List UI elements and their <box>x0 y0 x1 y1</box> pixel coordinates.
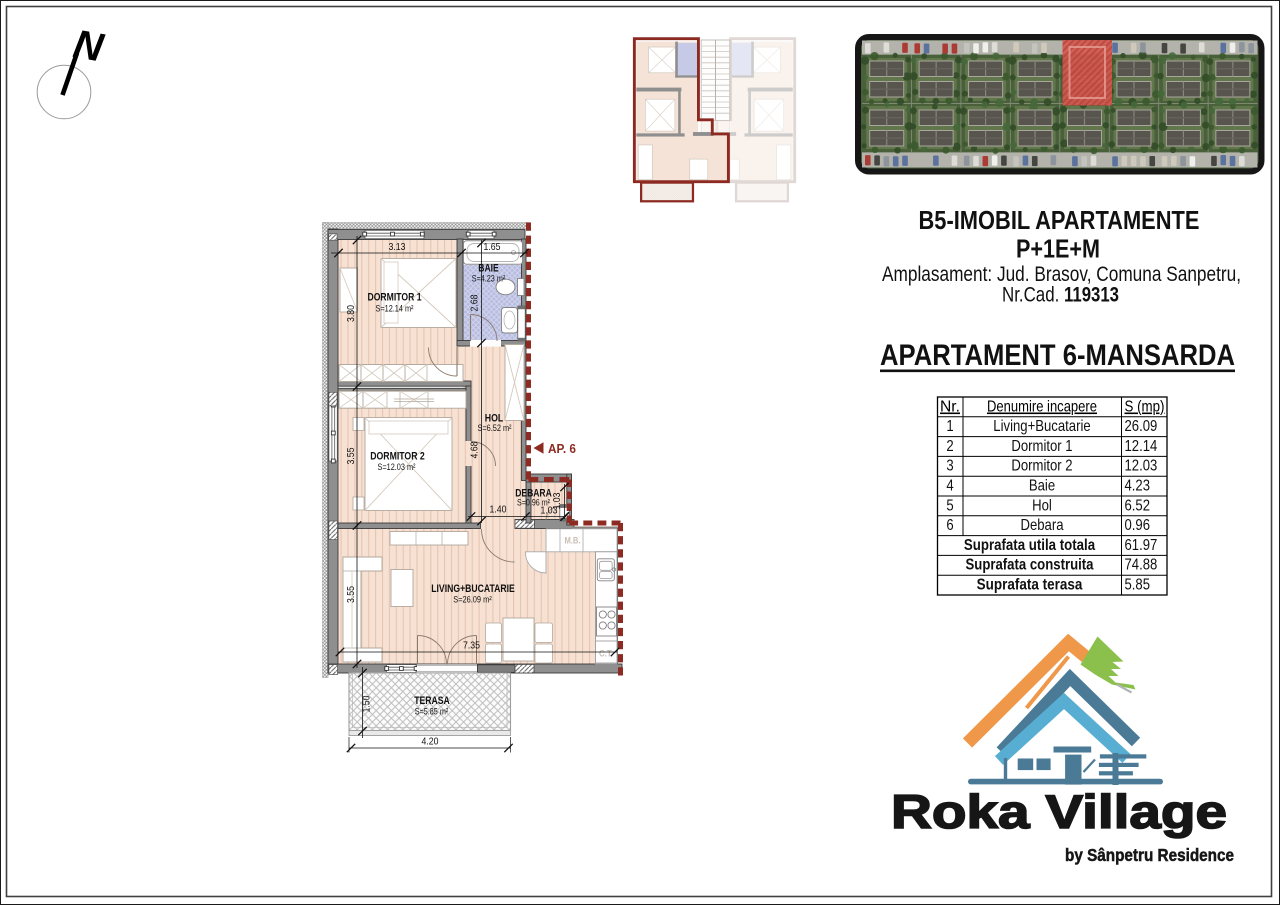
svg-text:DORMITOR 2: DORMITOR 2 <box>370 451 425 463</box>
svg-text:B5-IMOBIL APARTAMENTE: B5-IMOBIL APARTAMENTE <box>919 205 1200 235</box>
svg-text:TERASA: TERASA <box>414 695 450 707</box>
svg-text:61.97: 61.97 <box>1125 537 1158 554</box>
svg-text:Dormitor 1: Dormitor 1 <box>1011 438 1072 455</box>
svg-text:S=0.96 m²: S=0.96 m² <box>517 498 550 508</box>
svg-text:4: 4 <box>946 478 953 495</box>
svg-text:1.40: 1.40 <box>490 505 507 516</box>
svg-text:N: N <box>70 22 107 71</box>
svg-text:APARTAMENT 6-MANSARDA: APARTAMENT 6-MANSARDA <box>880 339 1235 372</box>
svg-text:12.14: 12.14 <box>1125 438 1158 455</box>
svg-text:6.52: 6.52 <box>1125 497 1151 514</box>
svg-text:74.88: 74.88 <box>1125 557 1158 574</box>
svg-text:0.96: 0.96 <box>1125 517 1151 534</box>
svg-text:S=6.52 m²: S=6.52 m² <box>478 423 513 434</box>
svg-text:3: 3 <box>946 458 953 475</box>
svg-text:1.65: 1.65 <box>484 242 501 253</box>
svg-text:Roka Village: Roka Village <box>891 785 1227 838</box>
svg-text:S=12.14 m²: S=12.14 m² <box>376 304 415 315</box>
svg-text:1: 1 <box>946 418 953 435</box>
svg-text:S=12.03 m²: S=12.03 m² <box>378 462 417 473</box>
svg-text:Living+Bucatarie: Living+Bucatarie <box>993 418 1090 435</box>
svg-text:Dormitor 2: Dormitor 2 <box>1011 458 1072 475</box>
svg-text:1.50: 1.50 <box>362 695 373 712</box>
svg-text:S=5.85 m²: S=5.85 m² <box>415 707 449 718</box>
svg-text:Nr.: Nr. <box>940 399 960 416</box>
svg-text:2.68: 2.68 <box>470 294 481 311</box>
svg-text:4.23: 4.23 <box>1125 478 1151 495</box>
svg-text:Suprafata terasa: Suprafata terasa <box>977 577 1083 594</box>
svg-text:5.85: 5.85 <box>1125 577 1151 594</box>
svg-text:Debara: Debara <box>1021 517 1064 534</box>
svg-text:Suprafata construita: Suprafata construita <box>966 557 1094 574</box>
svg-text:S=26.09 m²: S=26.09 m² <box>453 595 492 606</box>
svg-text:12.03: 12.03 <box>1125 458 1158 475</box>
svg-text:by Sânpetru Residence: by Sânpetru Residence <box>1065 845 1234 865</box>
svg-text:Hol: Hol <box>1032 497 1052 514</box>
svg-text:Denumire incapere: Denumire incapere <box>987 399 1097 416</box>
svg-text:C.T.: C.T. <box>599 649 613 659</box>
svg-text:Baie: Baie <box>1029 478 1055 495</box>
svg-text:3.13: 3.13 <box>389 242 406 253</box>
svg-text:Suprafata utila totala: Suprafata utila totala <box>964 537 1095 554</box>
svg-text:Nr.Cad. 119313: Nr.Cad. 119313 <box>1002 284 1119 307</box>
svg-text:AP. 6: AP. 6 <box>548 441 576 456</box>
svg-text:S (mp): S (mp) <box>1125 399 1165 416</box>
svg-text:S=4.23 m²: S=4.23 m² <box>472 274 506 285</box>
svg-text:1.03: 1.03 <box>552 492 563 509</box>
svg-text:3.55: 3.55 <box>346 586 357 603</box>
svg-text:6: 6 <box>946 517 953 534</box>
svg-text:DORMITOR 1: DORMITOR 1 <box>368 292 422 304</box>
svg-text:P+1E+M: P+1E+M <box>1016 234 1100 264</box>
svg-text:4.20: 4.20 <box>422 737 439 748</box>
svg-text:4.68: 4.68 <box>470 441 481 458</box>
svg-text:3.80: 3.80 <box>346 305 357 322</box>
svg-text:3.55: 3.55 <box>346 447 357 464</box>
svg-text:M.B.: M.B. <box>565 536 581 547</box>
svg-text:2: 2 <box>946 438 953 455</box>
svg-text:LIVING+BUCATARIE: LIVING+BUCATARIE <box>431 583 515 595</box>
svg-text:26.09: 26.09 <box>1125 418 1158 435</box>
svg-text:5: 5 <box>946 497 953 514</box>
svg-text:7.35: 7.35 <box>463 641 480 652</box>
